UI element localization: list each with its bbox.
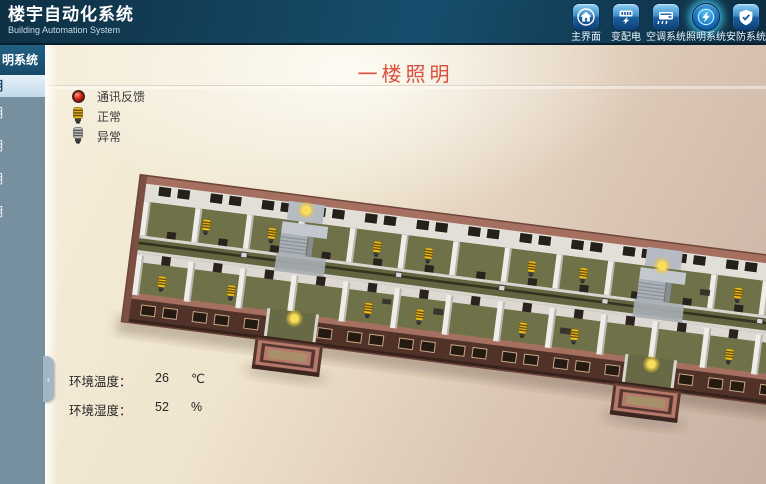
legend-label: 异常 [97,128,121,145]
nav-item-security[interactable]: 安防系统 [726,2,766,44]
nav-item-hvac[interactable]: 空调系统 [646,2,686,44]
temperature-unit: ℃ [191,371,205,390]
bulb-off-icon [69,127,87,145]
humidity-row: 环境湿度： 52 % [69,400,205,419]
legend-label: 通讯反馈 [97,88,145,105]
sidebar-item[interactable]: 明 [0,75,45,97]
building [113,174,766,452]
nav-item-power[interactable]: 变配电 [606,2,646,44]
sidebar: 明系统 明 明 明 明 明 [0,45,45,484]
sidebar-collapse-handle[interactable]: ‹ [43,356,54,402]
sidebar-item[interactable]: 明 [0,196,45,229]
nav-label: 照明系统 [686,32,726,44]
temperature-row: 环境温度： 26 ℃ [69,371,205,390]
legend: 通讯反馈 正常 [69,86,145,146]
nav-label: 空调系统 [646,32,686,44]
nav-label: 安防系统 [726,32,766,44]
home-icon [572,3,600,31]
humidity-value: 52 [155,400,185,419]
hvac-icon [652,3,680,31]
legend-label: 正常 [97,108,121,125]
system-nav: 主界面 变配电 [566,2,766,44]
content-area: 一楼照明 [45,45,766,484]
nav-item-lighting[interactable]: 照明系统 [686,2,726,44]
nav-label: 主界面 [566,32,606,44]
power-distribution-icon [612,3,640,31]
legend-item-comm: 通讯反馈 [69,86,145,106]
sidebar-item[interactable]: 明 [0,130,45,163]
nav-label: 变配电 [606,32,646,44]
security-icon [732,3,760,31]
app-title: 楼宇自动化系统 [8,5,134,25]
brand: 楼宇自动化系统 Building Automation System [8,5,134,36]
nav-item-main[interactable]: 主界面 [566,2,606,44]
legend-item-normal: 正常 [69,106,145,126]
environment-readings: 环境温度： 26 ℃ 环境湿度： 52 % [69,371,205,429]
app-subtitle: Building Automation System [8,25,134,36]
comm-indicator-icon [72,90,85,103]
bulb-on-icon [69,107,87,125]
building-automation-screen: 楼宇自动化系统 Building Automation System 主界面 [0,0,766,484]
temperature-label: 环境温度： [69,371,143,390]
legend-item-fault: 异常 [69,126,145,146]
lighting-icon [692,3,720,31]
sidebar-item[interactable]: 明 [0,97,45,130]
sidebar-item[interactable]: 明 [0,163,45,196]
page-title: 一楼照明 [45,58,766,87]
humidity-unit: % [191,400,202,419]
temperature-value: 26 [155,371,185,390]
sidebar-header: 明系统 [0,45,45,75]
humidity-label: 环境湿度： [69,400,143,419]
app-header: 楼宇自动化系统 Building Automation System 主界面 [0,0,766,45]
